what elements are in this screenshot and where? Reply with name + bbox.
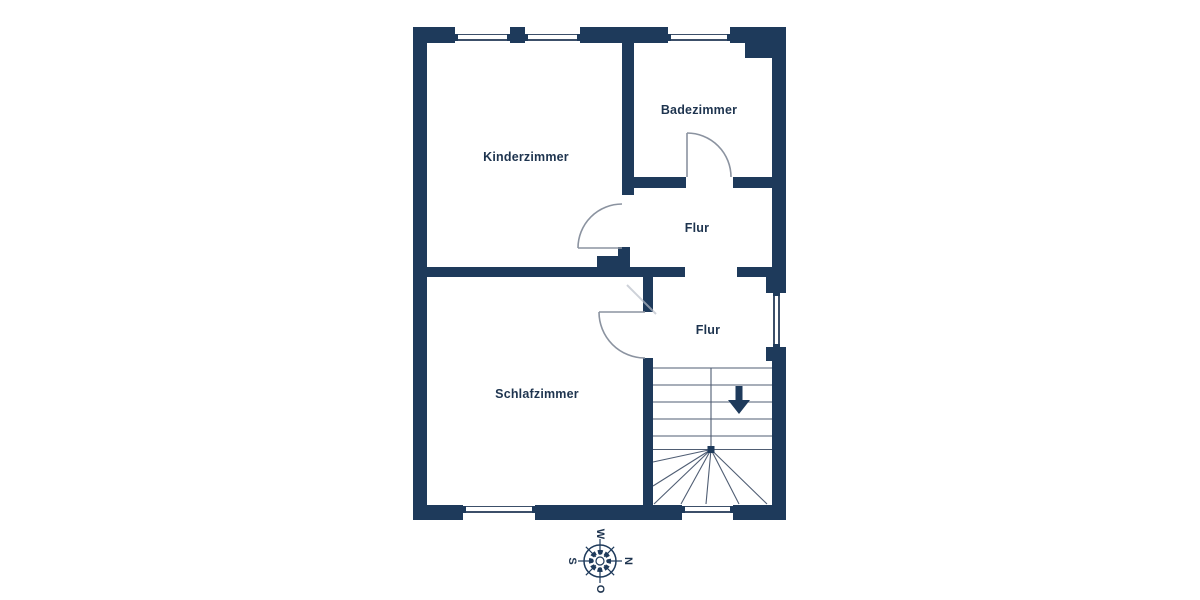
room-label-kinderzimmer: Kinderzimmer	[483, 150, 569, 164]
room-label-flur-lower: Flur	[696, 323, 720, 337]
door-swing-badezimmer	[687, 133, 731, 177]
stair-winder-hub	[708, 446, 715, 453]
room-label-badezimmer: Badezimmer	[661, 103, 737, 117]
compass-label-north: N	[622, 557, 634, 565]
room-label-schlafzimmer: Schlafzimmer	[495, 387, 579, 401]
compass-label-west: W	[594, 529, 606, 539]
door-swing-kinderzimmer	[578, 204, 622, 248]
watermark-line	[627, 285, 656, 314]
floor-plan: Kinderzimmer Badezimmer Flur Flur Schlaf…	[0, 0, 1200, 600]
room-label-flur-upper: Flur	[685, 221, 709, 235]
compass-label-south: S	[566, 557, 578, 564]
plan-linework	[0, 0, 1200, 600]
staircase	[653, 368, 772, 504]
stairs-down-arrow-icon	[728, 386, 750, 414]
compass-label-east: O	[594, 585, 606, 594]
door-swing-schlafzimmer	[599, 312, 645, 358]
